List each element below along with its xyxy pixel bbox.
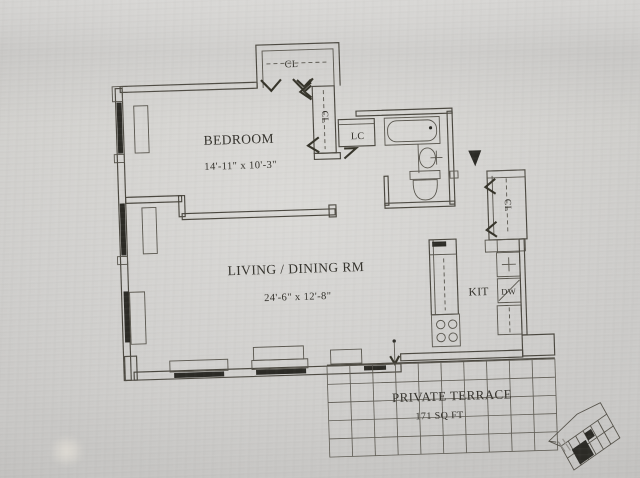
screen-photo: BEDROOM 14'-11" x 10'-3" CL xyxy=(0,0,640,478)
photo-vignette xyxy=(0,0,640,478)
